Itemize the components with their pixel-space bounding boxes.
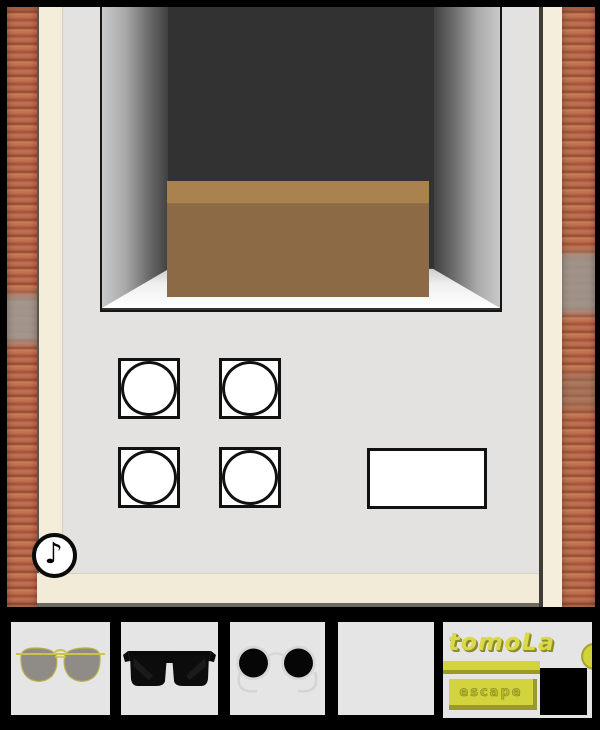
alcove-wall-right — [434, 7, 500, 308]
brand-subtitle: escape — [459, 685, 522, 700]
circle-button-1[interactable] — [118, 358, 180, 419]
brand-title: tomoLa — [448, 628, 548, 656]
brand-underline-bar — [443, 661, 540, 674]
inventory-slot-2[interactable] — [121, 622, 218, 715]
circle-icon — [121, 450, 177, 505]
circle-button-4[interactable] — [219, 447, 281, 508]
answer-rectangle[interactable] — [367, 448, 487, 509]
panel-frame-bottom — [37, 573, 539, 603]
game-screen: ♪ — [0, 0, 600, 730]
panel-frame-left — [37, 7, 62, 607]
circle-icon — [222, 361, 278, 416]
alcove — [100, 7, 502, 312]
circle-icon — [121, 361, 177, 416]
aviator-sunglasses-icon — [11, 622, 110, 715]
brick-wall-right — [562, 7, 595, 607]
sound-toggle-button[interactable]: ♪ — [32, 533, 77, 578]
black-sunglasses-icon — [121, 622, 218, 715]
inventory-slot-1[interactable] — [11, 622, 110, 715]
brown-box-lid — [167, 181, 429, 204]
panel-frame-right — [543, 7, 562, 607]
alcove-interior — [102, 7, 500, 308]
brand-subtitle-banner: escape — [449, 679, 537, 710]
brown-box[interactable] — [167, 181, 429, 297]
music-note-icon: ♪ — [44, 539, 63, 568]
black-square — [540, 668, 587, 715]
inventory-slot-4[interactable] — [338, 622, 434, 715]
brick-wall-left — [7, 7, 37, 607]
inventory-slot-3[interactable] — [230, 622, 325, 715]
circle-icon — [222, 450, 278, 505]
circle-button-2[interactable] — [219, 358, 281, 419]
brand-logo-box: tomoLa escape — [443, 622, 592, 718]
alcove-wall-left — [102, 7, 168, 308]
circle-button-3[interactable] — [118, 447, 180, 508]
brown-box-front — [167, 204, 429, 297]
panel-frame-shadow — [37, 603, 562, 607]
round-sunglasses-icon — [230, 622, 325, 715]
